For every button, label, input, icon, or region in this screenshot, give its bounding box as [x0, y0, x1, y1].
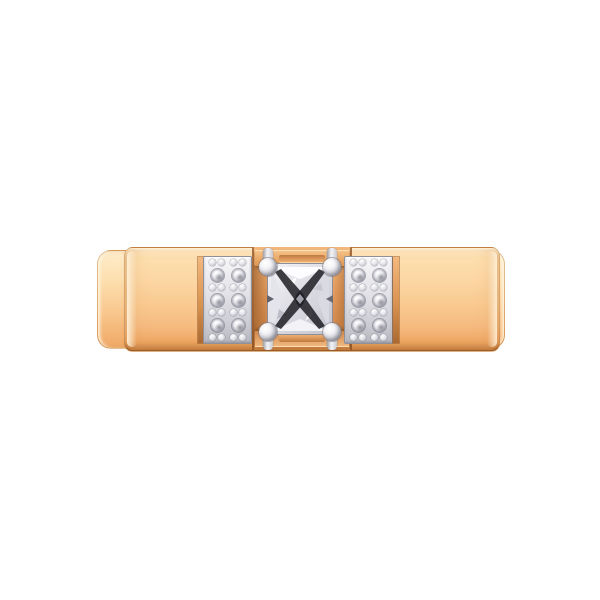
pave-diamond [232, 269, 245, 282]
bead [359, 334, 366, 341]
bead [209, 309, 216, 316]
pave-diamond [352, 294, 365, 307]
bead [359, 259, 366, 266]
pave-diamond [373, 294, 386, 307]
bead-pair [209, 309, 225, 316]
bead [350, 334, 357, 341]
pave-panel-left [203, 256, 252, 344]
pave-diamond [232, 294, 245, 307]
pave-diamond [373, 269, 386, 282]
bead [209, 284, 216, 291]
bead-pair [371, 334, 387, 341]
bead [218, 334, 225, 341]
bead [359, 309, 366, 316]
pave-gold-trim-right [393, 257, 399, 343]
bead [239, 309, 246, 316]
bead-pair [371, 259, 387, 266]
bead [230, 259, 237, 266]
prong [323, 258, 341, 276]
bead-pair [371, 284, 387, 291]
bead [239, 284, 246, 291]
bead [239, 334, 246, 341]
bead-pair [350, 309, 366, 316]
pave-column [209, 259, 225, 341]
pave-column [350, 259, 366, 341]
bead-pair [209, 259, 225, 266]
prong [259, 258, 277, 276]
bead-pair [371, 309, 387, 316]
prong [323, 323, 341, 341]
bead [350, 284, 357, 291]
bead-pair [350, 284, 366, 291]
bead [218, 259, 225, 266]
bead-pair [350, 334, 366, 341]
ring-product-photo [0, 0, 600, 600]
bead [230, 284, 237, 291]
bead [350, 259, 357, 266]
channel-top-slot [279, 255, 325, 262]
bead-pair [209, 284, 225, 291]
bead-pair [230, 334, 246, 341]
bead [371, 259, 378, 266]
pave-diamond [211, 294, 224, 307]
bead [230, 334, 237, 341]
bead [209, 334, 216, 341]
bead [230, 309, 237, 316]
bead-pair [230, 284, 246, 291]
bead [218, 284, 225, 291]
bead-pair [230, 259, 246, 266]
bead-pair [230, 309, 246, 316]
bead [371, 309, 378, 316]
bead [380, 334, 387, 341]
bead [371, 334, 378, 341]
bead-pair [350, 259, 366, 266]
bead [359, 284, 366, 291]
pave-diamond [352, 269, 365, 282]
pave-diamond [373, 319, 386, 332]
bead [350, 309, 357, 316]
bead [239, 259, 246, 266]
pave-panel-right [344, 256, 393, 344]
bead [380, 284, 387, 291]
channel-bottom-slot [279, 335, 325, 342]
pave-column [371, 259, 387, 341]
ring [0, 0, 600, 600]
bead [380, 309, 387, 316]
center-diamond [267, 263, 333, 335]
bead [380, 259, 387, 266]
bead [209, 259, 216, 266]
pave-diamond [352, 319, 365, 332]
bead [371, 284, 378, 291]
bead-pair [209, 334, 225, 341]
pave-diamond [211, 269, 224, 282]
pave-diamond [211, 319, 224, 332]
bead [218, 309, 225, 316]
pave-diamond [232, 319, 245, 332]
pave-column [230, 259, 246, 341]
prong [259, 323, 277, 341]
